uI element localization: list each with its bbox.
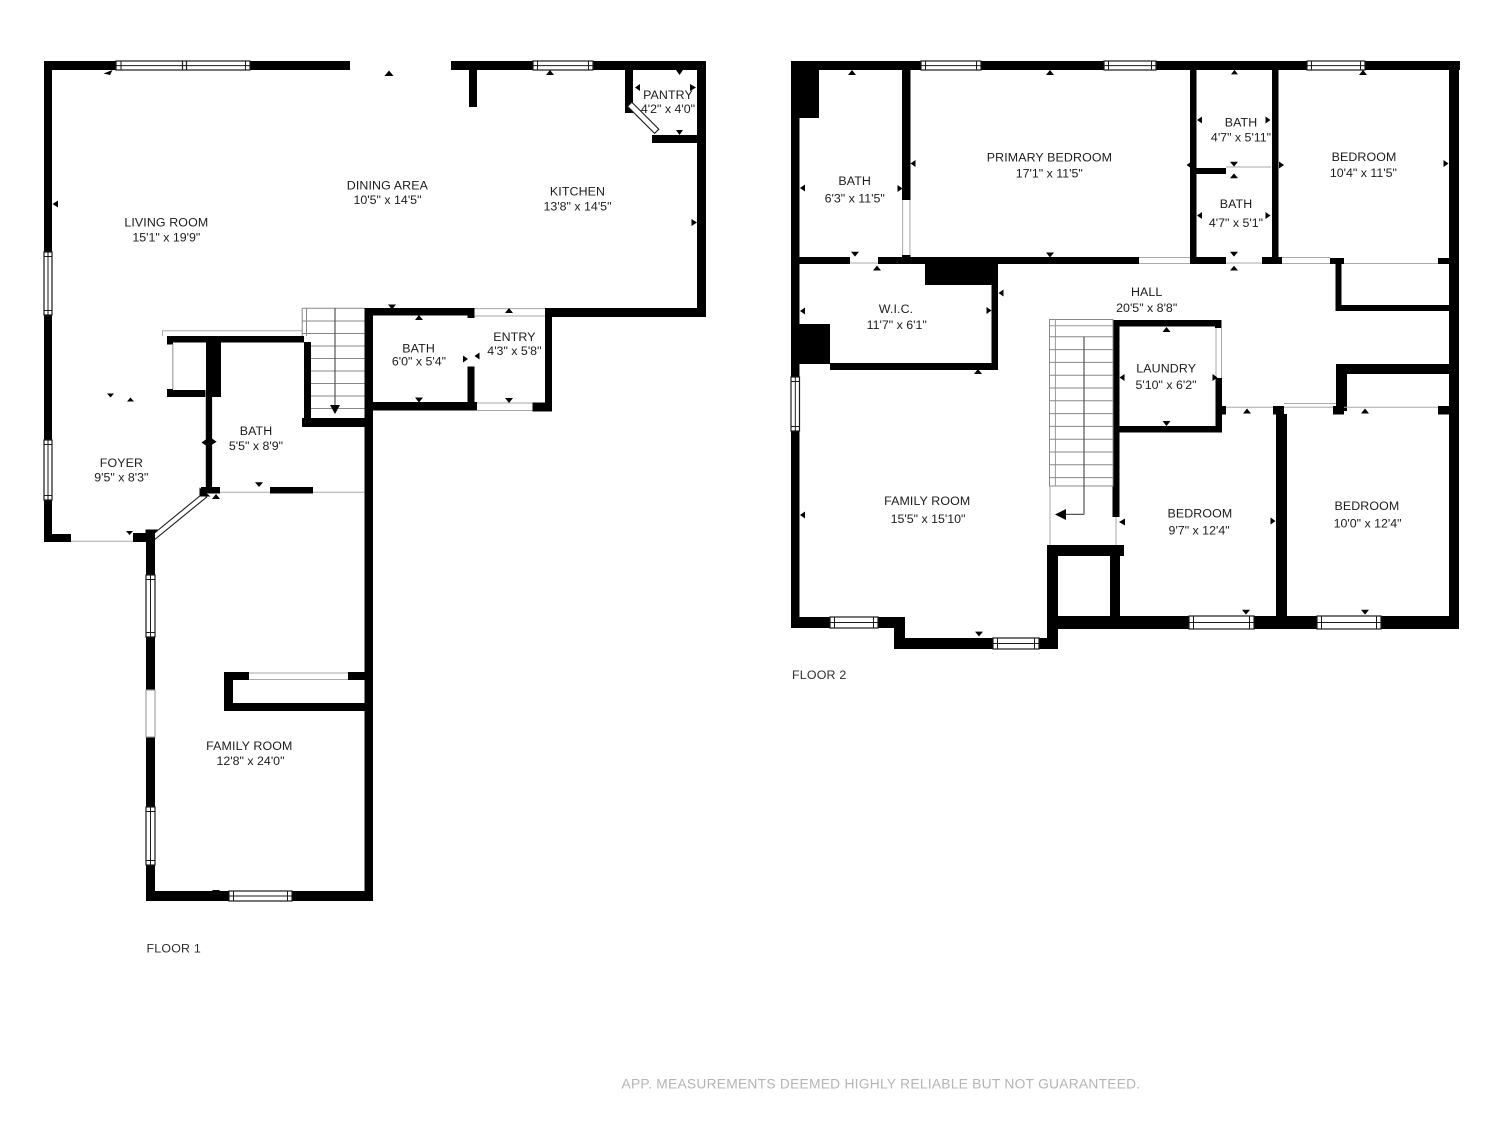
svg-text:20'5" x 8'8": 20'5" x 8'8" <box>1116 301 1177 315</box>
svg-text:4'7" x 5'1": 4'7" x 5'1" <box>1209 216 1263 230</box>
svg-text:11'7" x 6'1": 11'7" x 6'1" <box>867 318 927 332</box>
svg-text:9'7" x 12'4": 9'7" x 12'4" <box>1169 524 1230 538</box>
svg-text:15'1" x 19'9": 15'1" x 19'9" <box>132 230 200 244</box>
svg-text:6'0" x 5'4": 6'0" x 5'4" <box>392 355 446 369</box>
svg-text:4'2" x 4'0": 4'2" x 4'0" <box>641 102 695 116</box>
svg-text:5'5" x 8'9": 5'5" x 8'9" <box>229 439 283 453</box>
svg-text:BATH: BATH <box>240 424 273 438</box>
svg-text:BATH: BATH <box>1225 115 1258 129</box>
svg-text:BATH: BATH <box>402 341 435 355</box>
svg-text:BATH: BATH <box>1220 197 1253 211</box>
svg-text:BEDROOM: BEDROOM <box>1167 506 1232 520</box>
svg-text:LAUNDRY: LAUNDRY <box>1136 362 1196 376</box>
svg-text:APP. MEASUREMENTS DEEMED HIGHL: APP. MEASUREMENTS DEEMED HIGHLY RELIABLE… <box>622 1077 1141 1092</box>
svg-text:PANTRY: PANTRY <box>643 88 693 102</box>
svg-text:4'3" x 5'8": 4'3" x 5'8" <box>487 344 541 358</box>
svg-text:12'8" x 24'0": 12'8" x 24'0" <box>217 754 285 768</box>
svg-text:BEDROOM: BEDROOM <box>1334 499 1399 513</box>
svg-text:ENTRY: ENTRY <box>493 330 535 344</box>
svg-text:FLOOR 2: FLOOR 2 <box>792 668 846 682</box>
svg-text:FAMILY ROOM: FAMILY ROOM <box>884 494 970 508</box>
svg-text:BEDROOM: BEDROOM <box>1332 150 1397 164</box>
svg-text:15'5" x 15'10": 15'5" x 15'10" <box>891 512 966 526</box>
svg-text:PRIMARY BEDROOM: PRIMARY BEDROOM <box>987 151 1112 165</box>
svg-text:BATH: BATH <box>838 174 871 188</box>
svg-text:4'7" x 5'11": 4'7" x 5'11" <box>1211 131 1271 145</box>
svg-text:5'10" x 6'2": 5'10" x 6'2" <box>1135 378 1196 392</box>
svg-text:10'0" x 12'4": 10'0" x 12'4" <box>1334 516 1402 530</box>
svg-text:17'1" x 11'5": 17'1" x 11'5" <box>1016 167 1083 181</box>
svg-text:6'3" x 11'5": 6'3" x 11'5" <box>825 192 885 206</box>
svg-text:9'5" x 8'3": 9'5" x 8'3" <box>94 471 148 485</box>
svg-text:DINING AREA: DINING AREA <box>347 178 429 192</box>
svg-text:FLOOR 1: FLOOR 1 <box>147 942 201 956</box>
svg-text:FOYER: FOYER <box>100 456 143 470</box>
svg-text:LIVING ROOM: LIVING ROOM <box>124 215 208 229</box>
svg-text:10'4" x 11'5": 10'4" x 11'5" <box>1330 166 1397 180</box>
svg-text:HALL: HALL <box>1131 285 1162 299</box>
svg-text:KITCHEN: KITCHEN <box>550 184 605 198</box>
svg-text:13'8" x 14'5": 13'8" x 14'5" <box>544 199 612 213</box>
svg-text:FAMILY ROOM: FAMILY ROOM <box>206 739 292 753</box>
svg-text:W.I.C.: W.I.C. <box>879 302 913 316</box>
svg-text:10'5" x 14'5": 10'5" x 14'5" <box>354 193 422 207</box>
